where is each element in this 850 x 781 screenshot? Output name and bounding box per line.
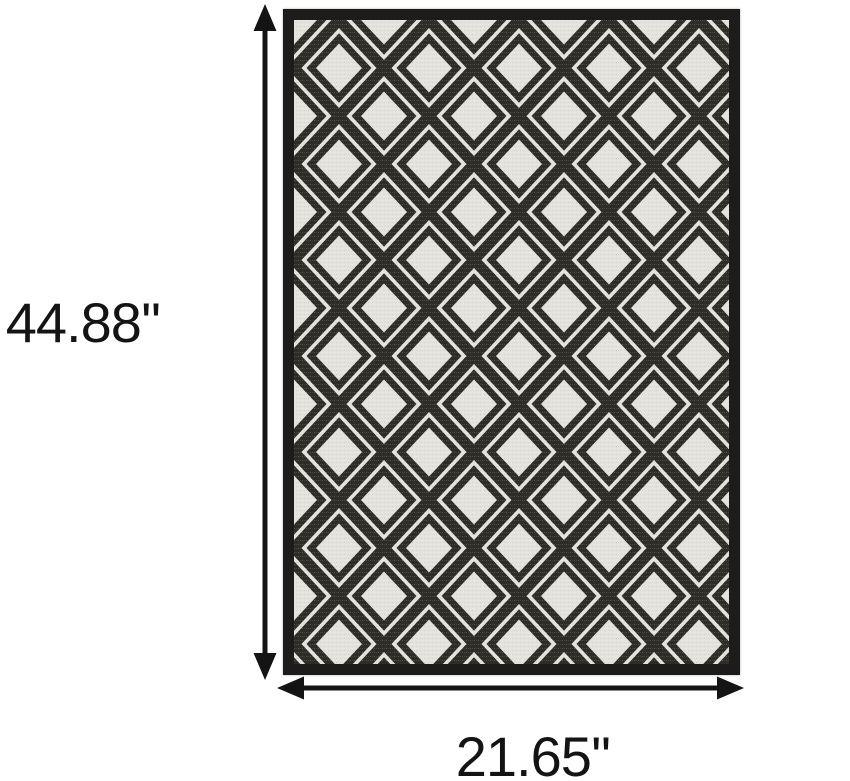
height-arrowhead-top	[254, 4, 277, 31]
width-arrowhead-right	[717, 677, 744, 700]
product-dimension-diagram: 44.88'' 21.65''	[0, 0, 850, 781]
rug-weave-texture	[294, 20, 729, 664]
rug-image	[283, 9, 740, 675]
width-arrowhead-left	[277, 677, 304, 700]
width-arrow	[277, 677, 744, 700]
width-dimension-label: 21.65''	[433, 729, 633, 781]
height-arrowhead-bottom	[254, 653, 277, 680]
height-arrow	[254, 4, 277, 680]
height-dimension-label: 44.88''	[0, 295, 166, 351]
rug-field-pattern	[294, 20, 729, 664]
